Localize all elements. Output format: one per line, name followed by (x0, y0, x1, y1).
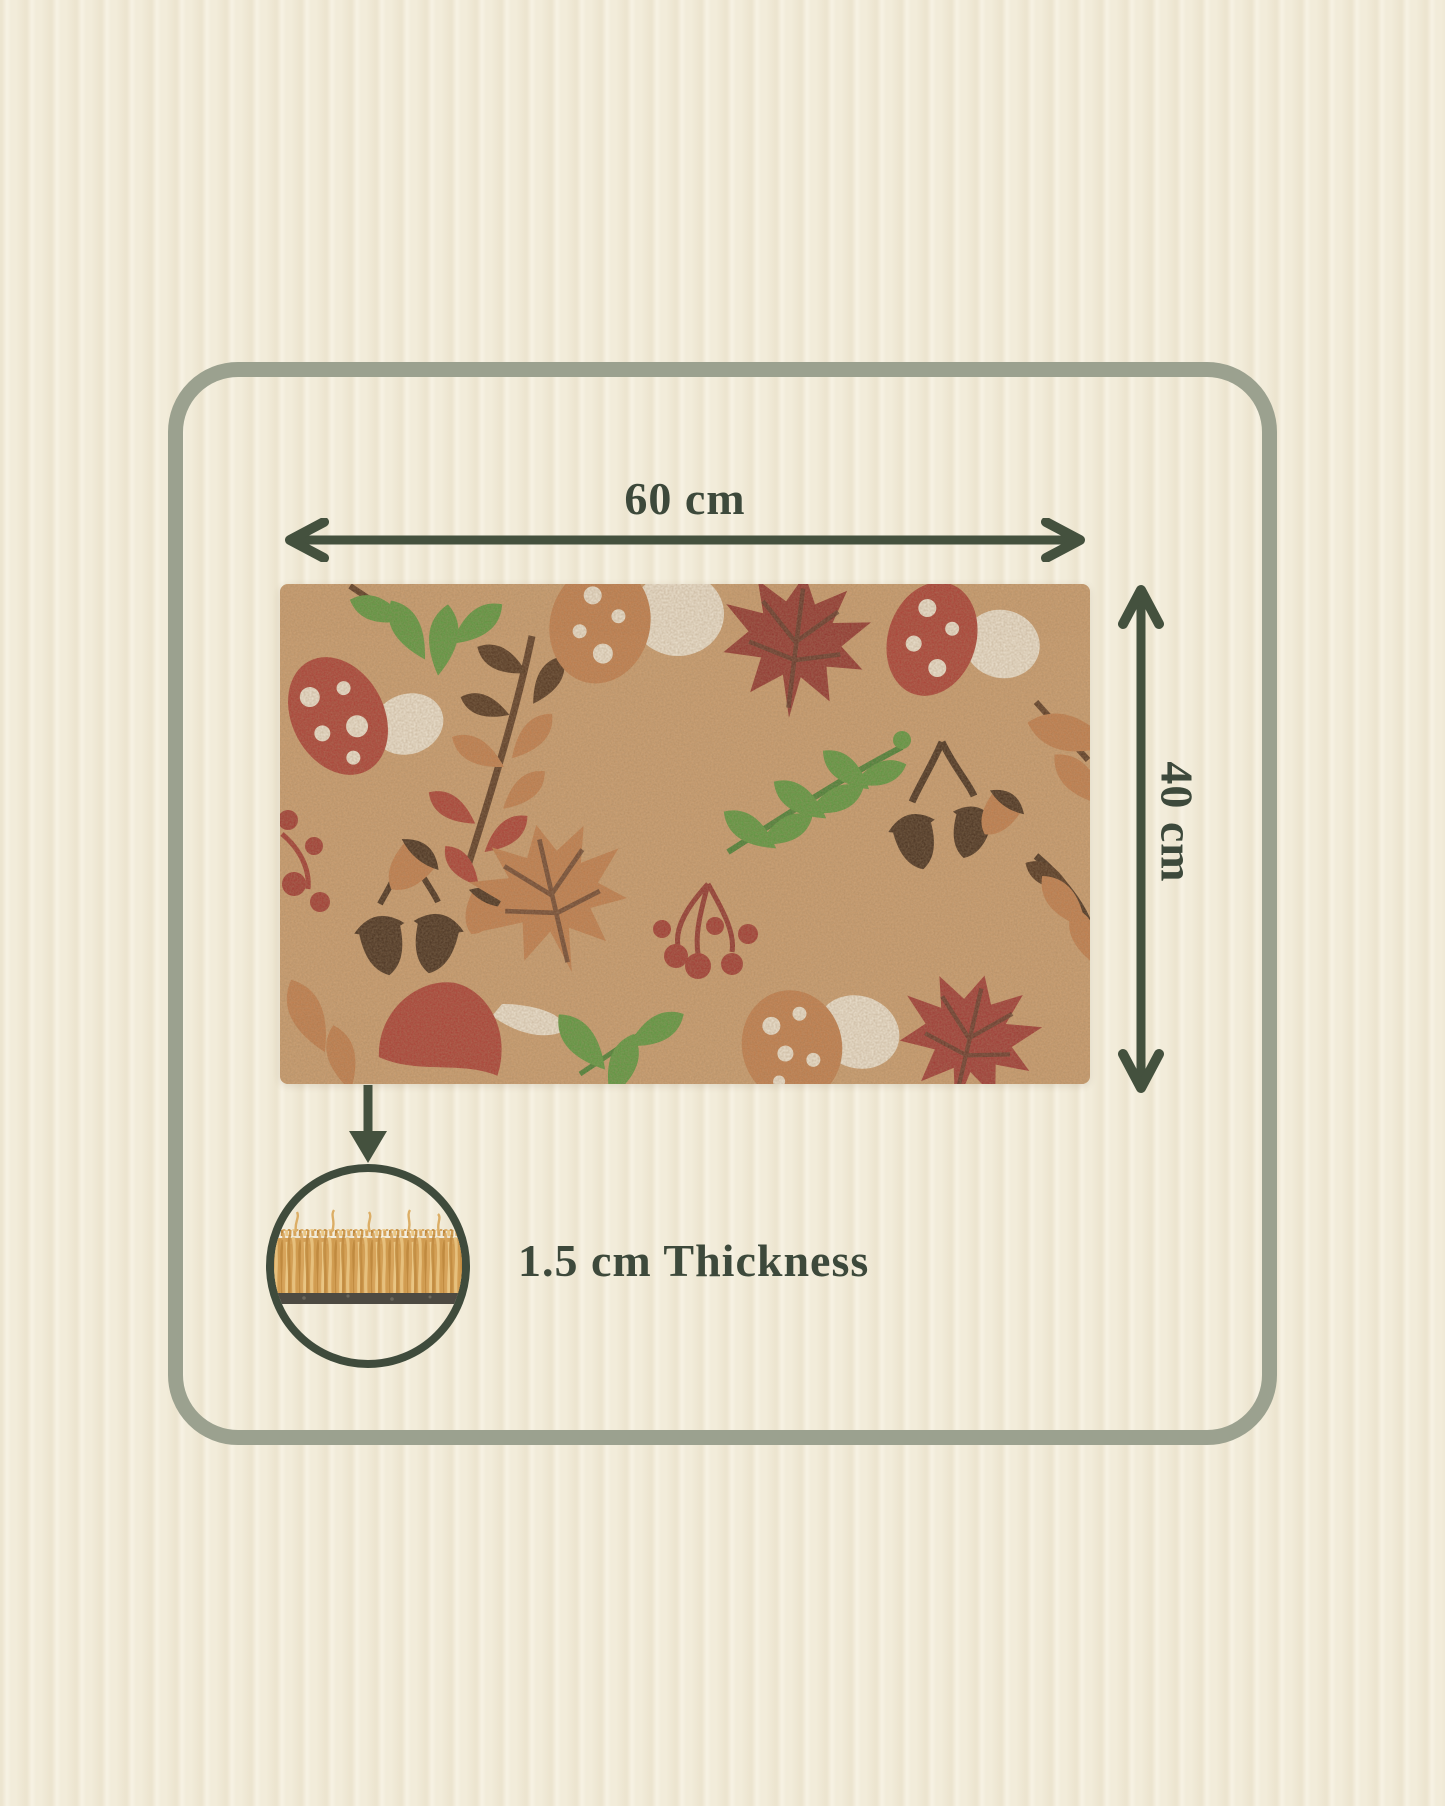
thickness-detail-circle (266, 1164, 470, 1368)
height-dimension-label: 40 cm (1151, 761, 1204, 882)
mat-backing-strip (274, 1293, 462, 1304)
horizontal-dimension-arrow-icon (278, 518, 1092, 562)
coir-highlight-overlay (280, 584, 1090, 1084)
thickness-pointer-arrow-icon (348, 1085, 388, 1165)
doormat-photo (280, 584, 1090, 1084)
coir-cross-section (274, 1172, 462, 1360)
thickness-label: 1.5 cm Thickness (518, 1234, 869, 1287)
